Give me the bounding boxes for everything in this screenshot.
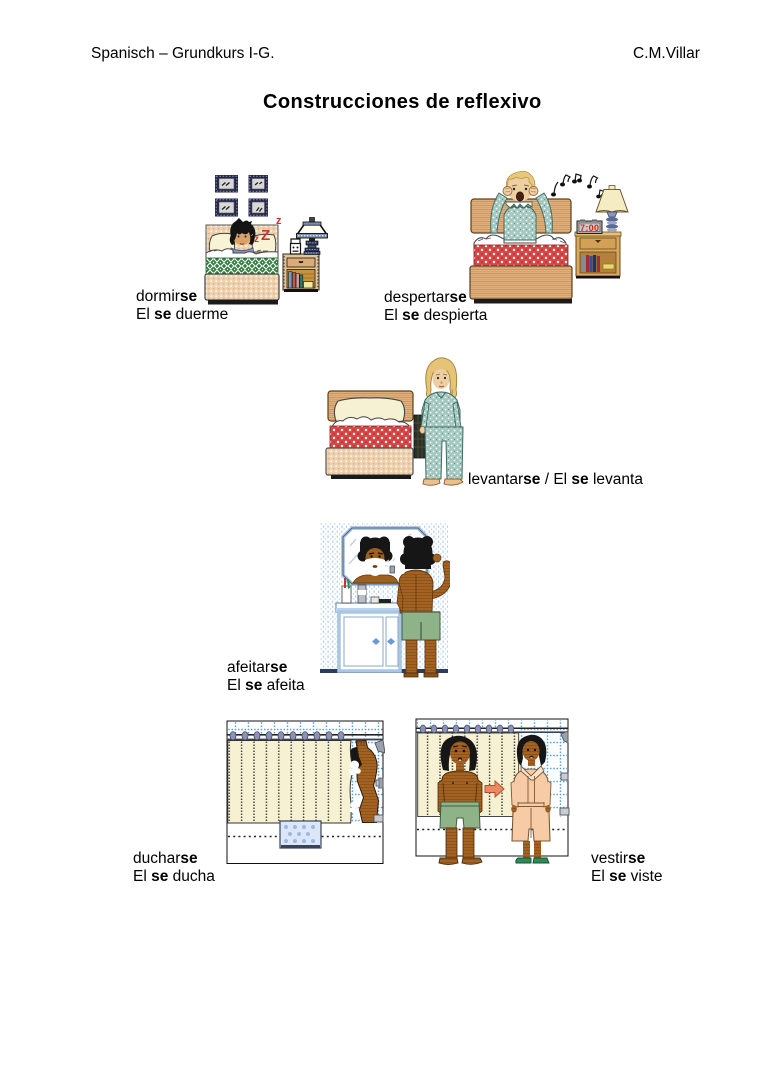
svg-text:z: z [276, 215, 282, 227]
svg-text:7:00: 7:00 [580, 223, 599, 233]
svg-text:z: z [254, 234, 259, 245]
svg-text:Z: Z [261, 227, 270, 244]
